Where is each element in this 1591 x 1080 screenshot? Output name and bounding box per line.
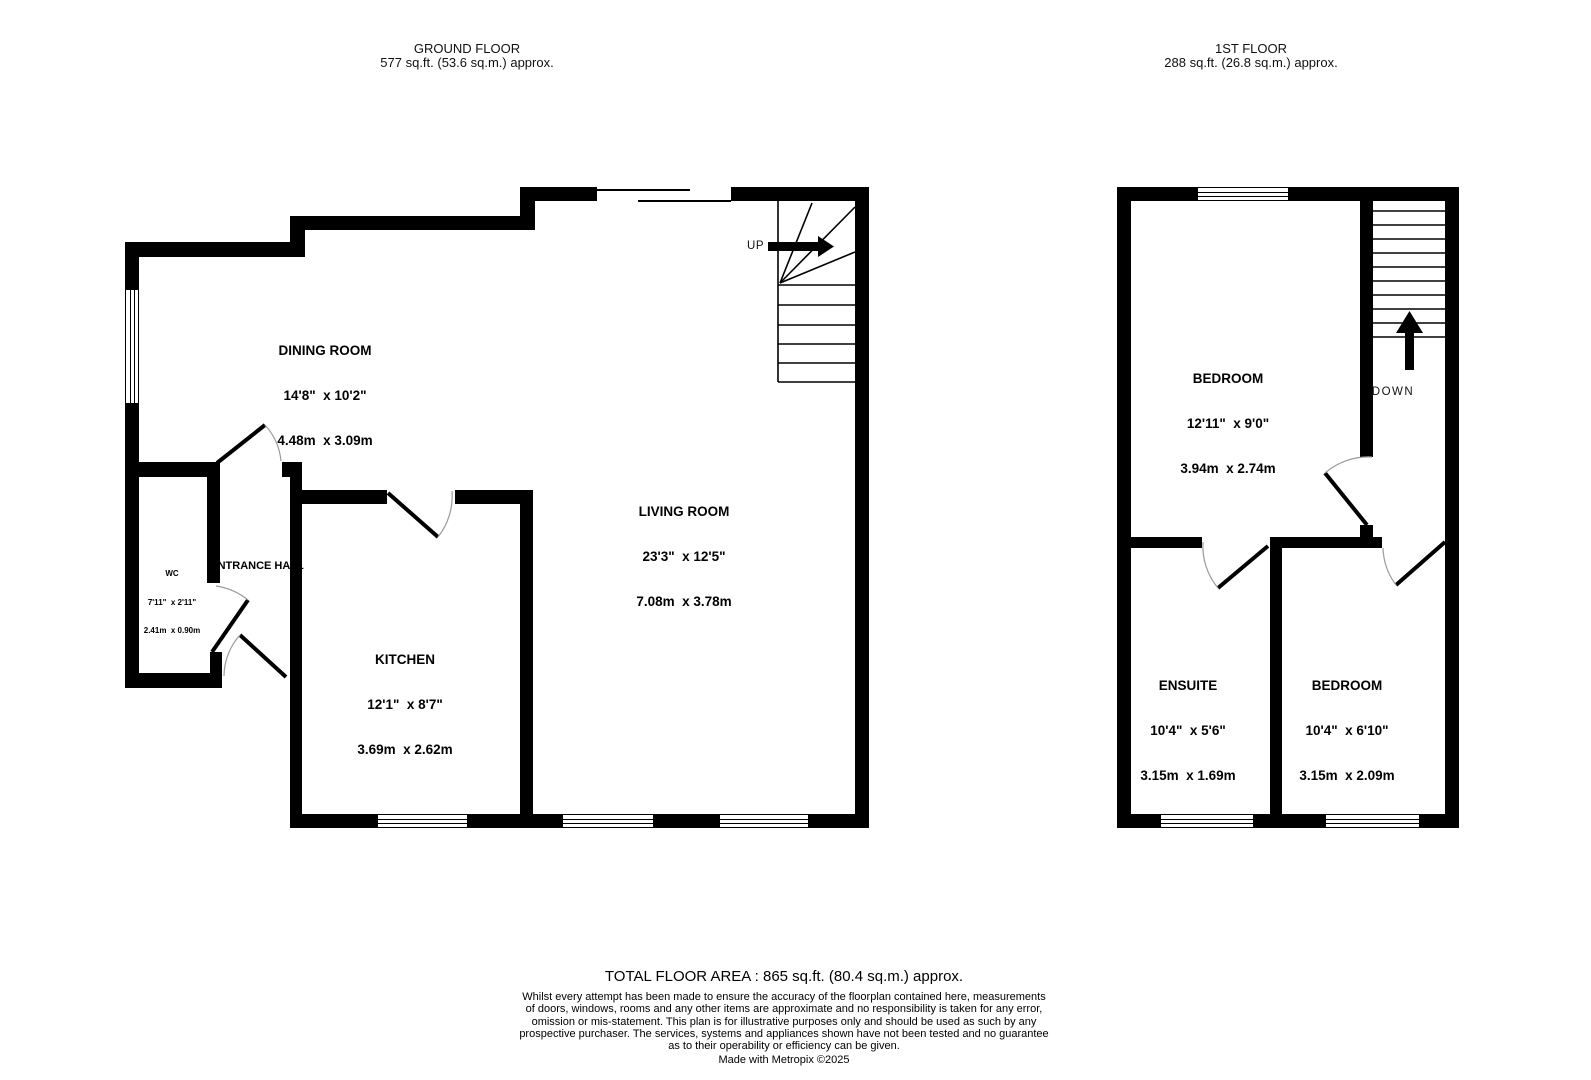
up-arrow-icon: [768, 236, 834, 257]
first-floor-area: 288 sq.ft. (26.8 sq.m.) approx.: [1051, 56, 1451, 70]
stairs-ground: [778, 201, 855, 382]
kitchen-door-leaf: [388, 493, 438, 537]
wall: [731, 187, 869, 201]
down-stairs-arrow-icon: [1396, 311, 1423, 370]
open-plan-divider: [597, 190, 731, 201]
wall: [1270, 548, 1282, 814]
wall: [125, 242, 305, 257]
wall: [302, 490, 387, 504]
wall: [1360, 525, 1373, 537]
wall: [1117, 187, 1459, 201]
ground-floor-header: GROUND FLOOR 577 sq.ft. (53.6 sq.m.) app…: [267, 42, 667, 70]
disclaimer-line: Whilst every attempt has been made to en…: [504, 991, 1064, 1003]
first-floor-header: 1ST FLOOR 288 sq.ft. (26.8 sq.m.) approx…: [1051, 42, 1451, 70]
footer: TOTAL FLOOR AREA : 865 sq.ft. (80.4 sq.m…: [504, 968, 1064, 1067]
wall: [125, 462, 213, 477]
front-door-leaf: [240, 635, 286, 677]
wall: [520, 187, 597, 201]
window: [720, 814, 808, 828]
window: [1326, 814, 1419, 828]
total-floor-area: TOTAL FLOOR AREA : 865 sq.ft. (80.4 sq.m…: [504, 968, 1064, 985]
ground-floor-title: GROUND FLOOR: [267, 42, 667, 56]
window: [125, 290, 139, 403]
window: [378, 814, 467, 828]
stairs-up-label: UP: [724, 240, 764, 252]
wall: [125, 242, 139, 290]
window: [1161, 814, 1253, 828]
room-label-living: LIVING ROOM 23'3" x 12'5" 7.08m x 3.78m: [584, 474, 784, 639]
window: [563, 814, 653, 828]
wall: [855, 187, 869, 828]
wall: [1131, 537, 1202, 548]
disclaimer-line: prospective purchaser. The services, sys…: [504, 1028, 1064, 1040]
wall: [290, 216, 535, 230]
wall: [125, 403, 139, 688]
first-floor-title: 1ST FLOOR: [1051, 42, 1451, 56]
bedroom1-door-leaf: [1325, 473, 1367, 525]
disclaimer-line: of doors, windows, rooms and any other i…: [504, 1003, 1064, 1015]
bedroom2-door-leaf: [1396, 542, 1445, 585]
disclaimer-line: omission or mis-statement. This plan is …: [504, 1016, 1064, 1028]
wall: [1117, 187, 1131, 828]
room-label-bedroom-1: BEDROOM 12'11" x 9'0" 3.94m x 2.74m: [1128, 341, 1328, 506]
ensuite-door-leaf: [1218, 546, 1268, 588]
disclaimer-line: as to their operability or efficiency ca…: [504, 1040, 1064, 1052]
wall: [210, 652, 222, 673]
wall: [1445, 187, 1459, 828]
wall: [520, 490, 533, 814]
floorplan-page: GROUND FLOOR 577 sq.ft. (53.6 sq.m.) app…: [0, 0, 1591, 1080]
window: [1198, 187, 1288, 201]
room-label-dining: DINING ROOM 14'8" x 10'2" 4.48m x 3.09m: [225, 313, 425, 478]
wall: [125, 673, 222, 688]
wall: [1360, 187, 1373, 457]
room-label-kitchen: KITCHEN 12'1" x 8'7" 3.69m x 2.62m: [305, 622, 505, 787]
wall: [207, 462, 220, 583]
stairs-first-floor: [1373, 211, 1445, 337]
ground-floor-area: 577 sq.ft. (53.6 sq.m.) approx.: [267, 56, 667, 70]
metropix-credit: Made with Metropix ©2025: [504, 1054, 1064, 1066]
wall: [1270, 537, 1382, 548]
wall: [290, 462, 302, 814]
